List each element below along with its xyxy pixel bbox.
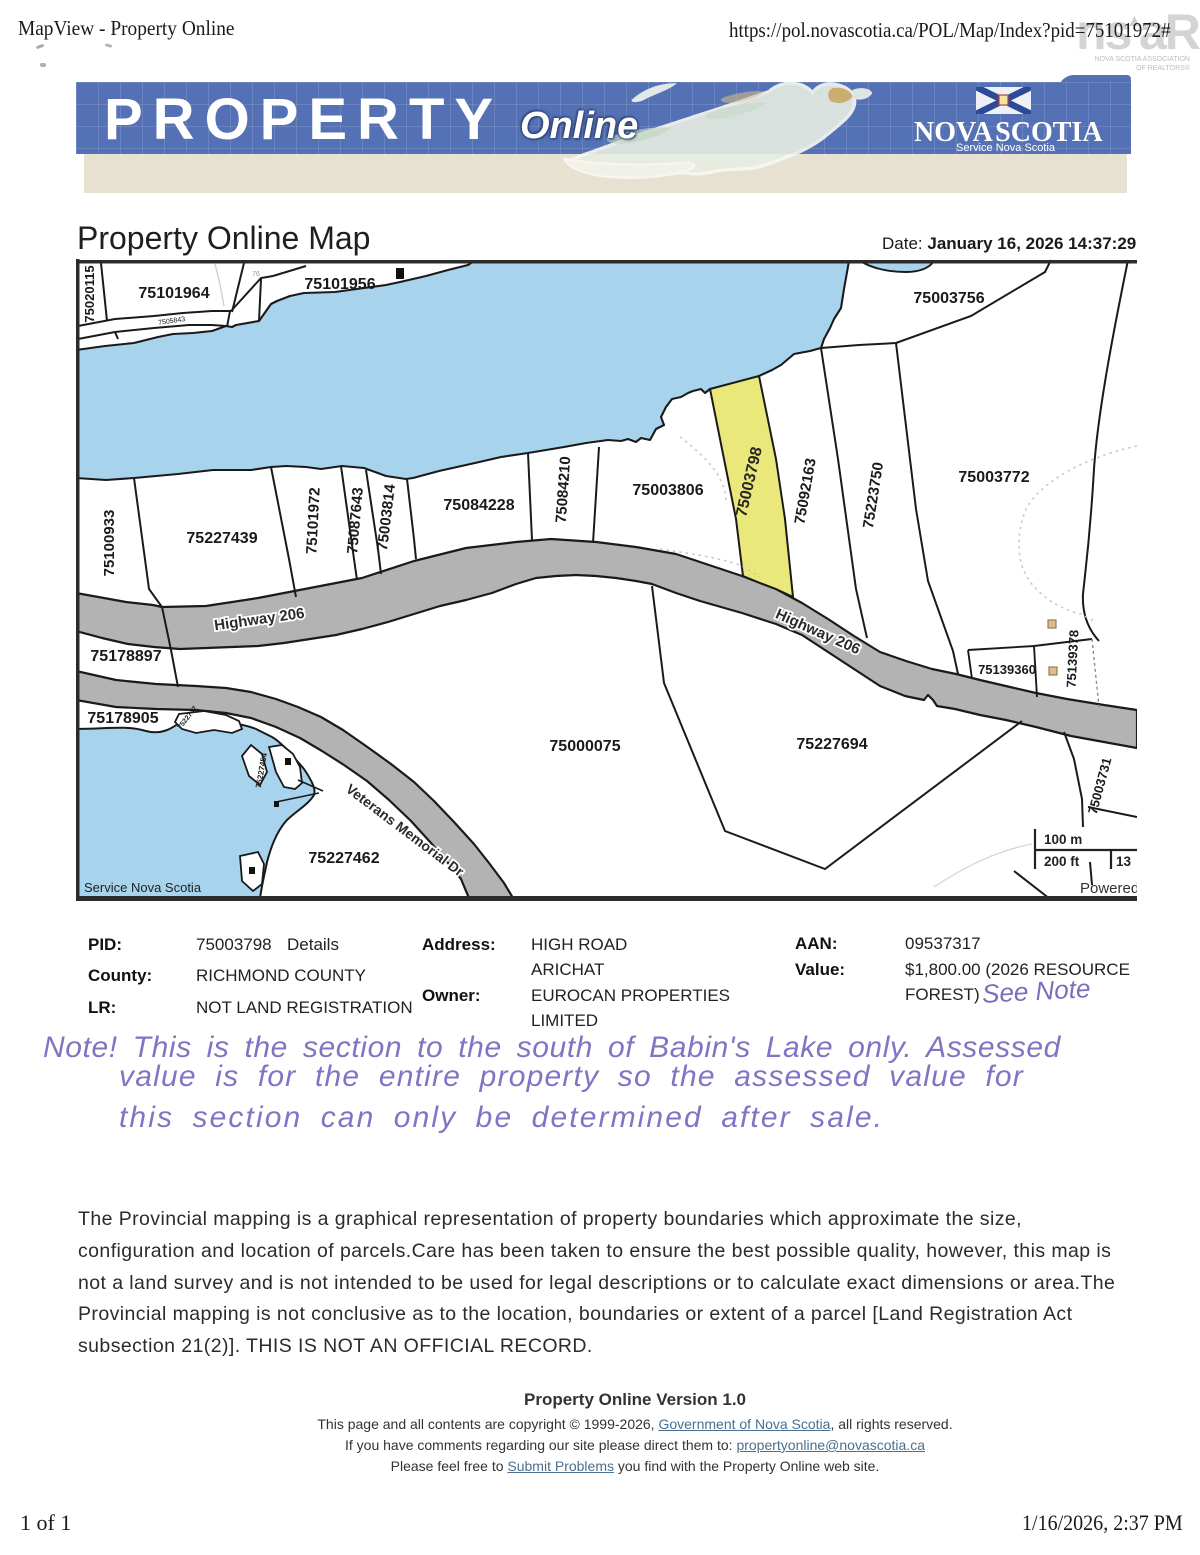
svg-text:75227462: 75227462: [308, 850, 379, 867]
svg-text:75084228: 75084228: [443, 497, 514, 514]
svg-text:75100933: 75100933: [101, 510, 118, 577]
svg-text:75101964: 75101964: [138, 285, 209, 302]
svg-text:200 ft: 200 ft: [1044, 854, 1080, 869]
svg-text:75139360: 75139360: [978, 662, 1036, 677]
svg-text:75101956: 75101956: [304, 276, 375, 293]
svg-text:75003772: 75003772: [958, 469, 1029, 486]
svg-text:Service Nova Scotia: Service Nova Scotia: [84, 880, 202, 895]
svg-text:75227439: 75227439: [186, 530, 257, 547]
svg-text:75003806: 75003806: [632, 482, 703, 499]
svg-text:75020115: 75020115: [82, 265, 97, 322]
svg-text:75178897: 75178897: [90, 648, 161, 665]
svg-text:75139378: 75139378: [1064, 629, 1082, 688]
svg-text:75003756: 75003756: [913, 290, 984, 307]
svg-text:13: 13: [1116, 854, 1132, 869]
svg-text:75178905: 75178905: [87, 710, 158, 727]
svg-text:100 m: 100 m: [1044, 832, 1082, 847]
svg-text:75000075: 75000075: [549, 738, 620, 755]
svg-text:75227694: 75227694: [796, 736, 867, 753]
svg-text:76: 76: [252, 271, 260, 278]
svg-text:75101972: 75101972: [303, 487, 323, 555]
svg-text:Powered: Powered: [1080, 880, 1137, 897]
